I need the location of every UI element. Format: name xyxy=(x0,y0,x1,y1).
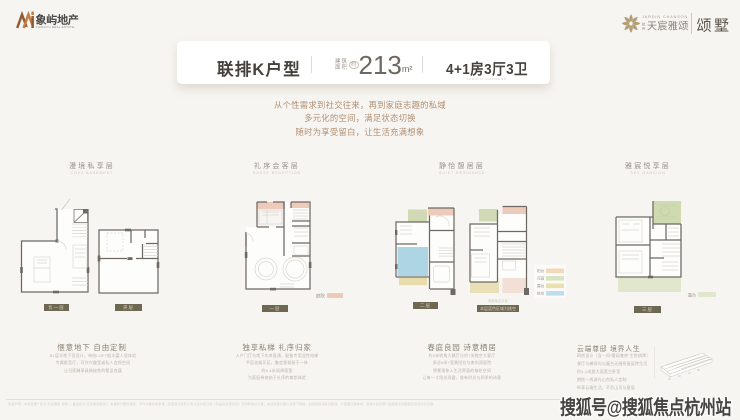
svg-text:露台: 露台 xyxy=(688,292,696,298)
